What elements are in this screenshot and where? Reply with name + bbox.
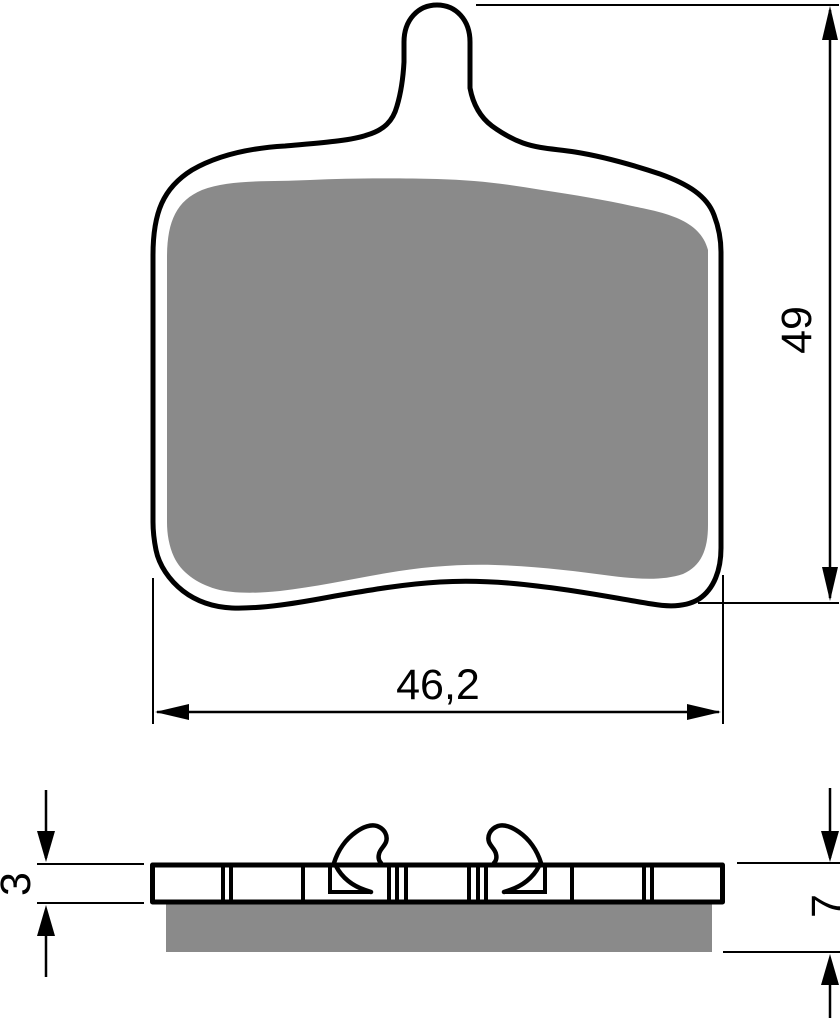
dimension-total-thickness: 7: [723, 788, 840, 1018]
dim7-arrowhead-up-icon: [821, 954, 839, 985]
dim49-label: 49: [773, 306, 821, 354]
dim462-arrowhead-left-icon: [155, 704, 189, 720]
spring-clip-right-band: [488, 825, 541, 863]
dim462-label: 46,2: [396, 661, 480, 709]
dim49-arrowhead-up-icon: [822, 6, 838, 40]
front-view: [153, 5, 721, 608]
front-friction-material: [167, 178, 708, 592]
dim3-arrowhead-up-icon: [37, 905, 55, 936]
side-plate-section-lines: [223, 867, 652, 900]
dimension-front-width: 46,2: [153, 575, 723, 724]
dim3-label: 3: [0, 872, 40, 896]
dim3-arrowhead-down-icon: [37, 831, 55, 862]
spring-clip-right: [488, 825, 547, 892]
dim49-arrowhead-down-icon: [822, 567, 838, 601]
dim7-label: 7: [803, 894, 840, 918]
spring-clip-left-band: [334, 825, 387, 863]
brake-pad-drawing-canvas: 49 46,2: [0, 0, 840, 1024]
dim462-arrowhead-right-icon: [687, 704, 721, 720]
dimension-plate-thickness: 3: [0, 790, 144, 977]
side-view: [153, 825, 723, 952]
technical-drawing-page: 49 46,2: [0, 0, 840, 1024]
spring-clip-left: [328, 825, 387, 892]
spring-clip-right-inner-curve: [504, 866, 539, 892]
side-backing-plate: [153, 865, 723, 902]
spring-clip-left-inner-curve: [336, 866, 371, 892]
dim7-arrowhead-down-icon: [821, 831, 839, 862]
side-friction-material: [166, 904, 712, 952]
